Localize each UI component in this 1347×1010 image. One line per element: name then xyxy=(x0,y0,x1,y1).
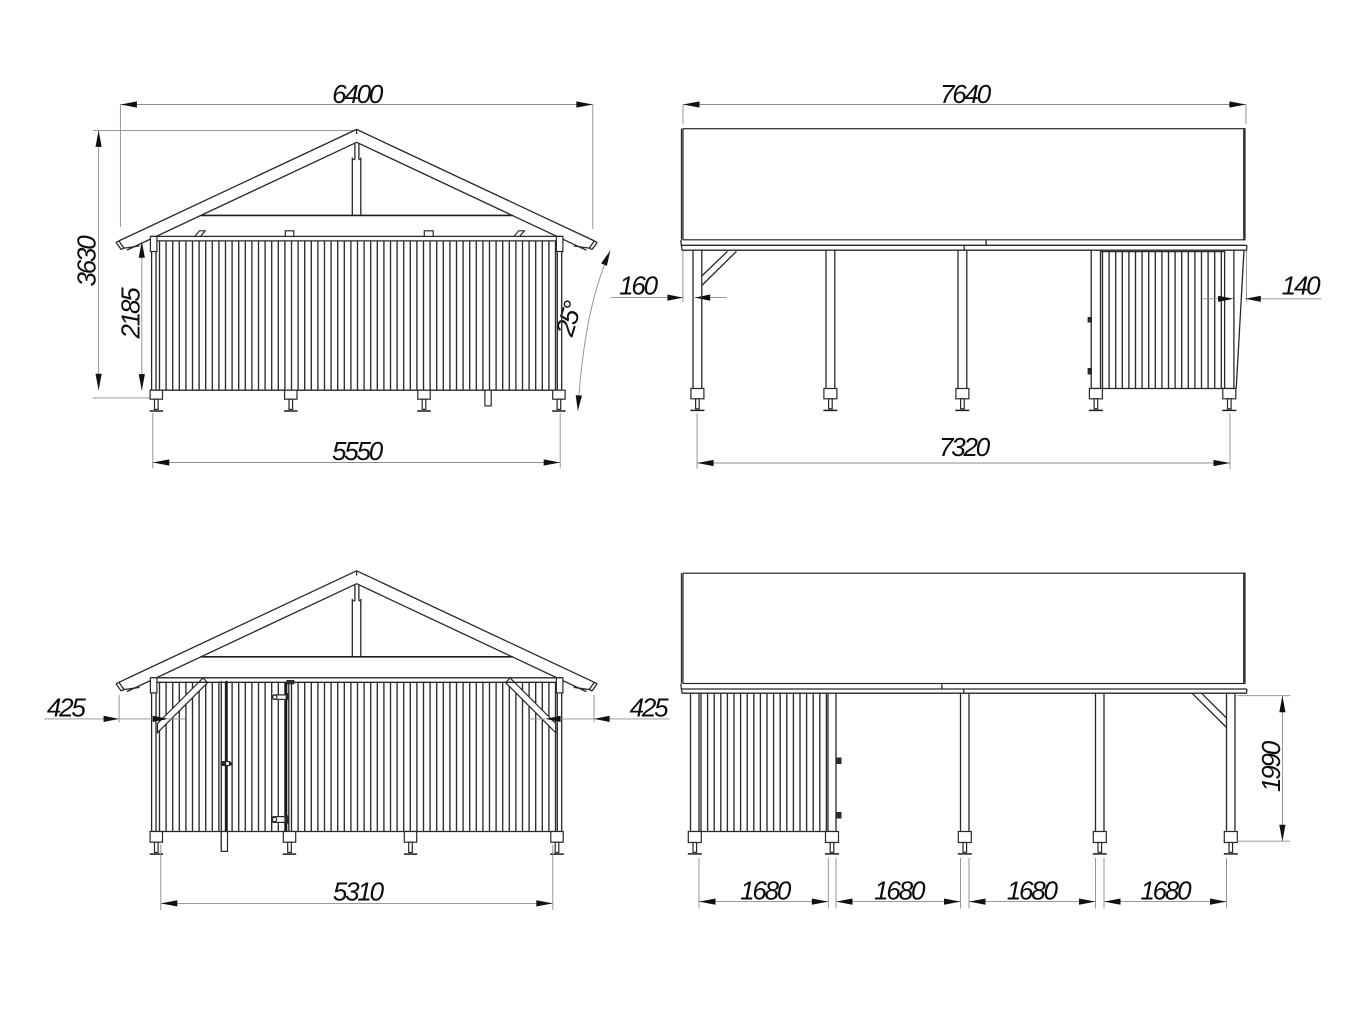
svg-text:425: 425 xyxy=(47,693,87,723)
svg-text:6400: 6400 xyxy=(332,79,384,109)
svg-text:7640: 7640 xyxy=(940,79,992,109)
svg-text:1990: 1990 xyxy=(1256,740,1286,792)
svg-text:5310: 5310 xyxy=(333,877,385,907)
svg-text:5550: 5550 xyxy=(332,436,384,466)
svg-text:1680: 1680 xyxy=(740,876,792,906)
svg-text:160: 160 xyxy=(619,271,659,301)
svg-text:2185: 2185 xyxy=(116,287,146,340)
svg-text:140: 140 xyxy=(1282,271,1322,301)
svg-text:1680: 1680 xyxy=(1140,876,1192,906)
svg-text:425: 425 xyxy=(630,693,670,723)
svg-text:1680: 1680 xyxy=(874,876,926,906)
svg-text:3630: 3630 xyxy=(72,235,102,287)
svg-text:1680: 1680 xyxy=(1007,876,1059,906)
svg-text:7320: 7320 xyxy=(939,432,991,462)
